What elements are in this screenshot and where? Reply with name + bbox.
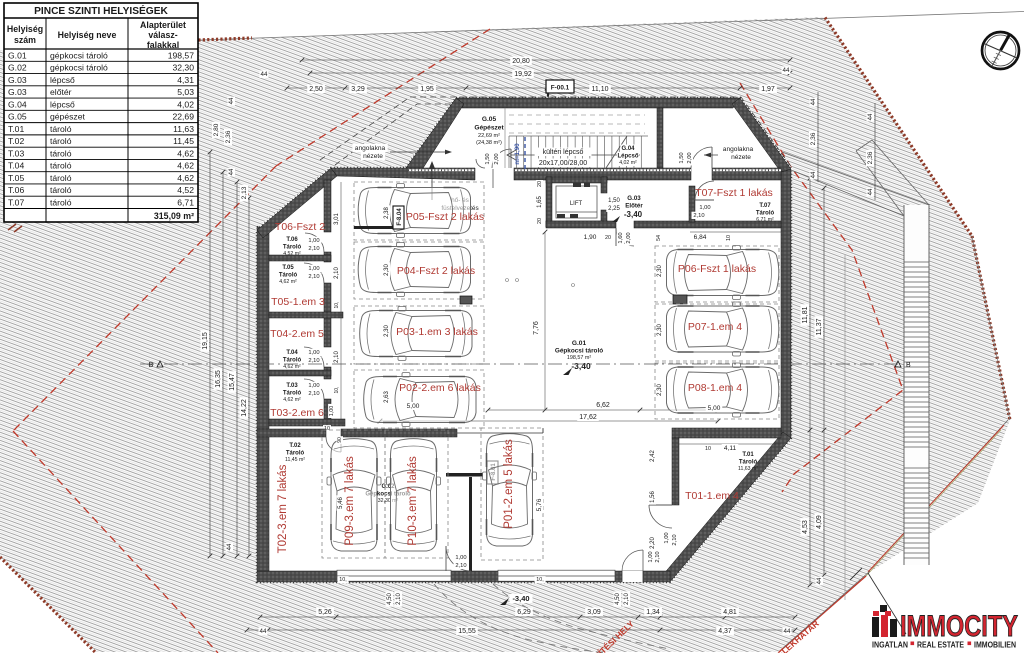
- svg-text:P05-Fszt 2 lakás: P05-Fszt 2 lakás: [406, 211, 484, 223]
- svg-text:1,00: 1,00: [308, 383, 319, 389]
- svg-text:11,63 m²: 11,63 m²: [738, 466, 758, 472]
- svg-text:G.03: G.03: [8, 75, 27, 85]
- svg-text:P10-3.em 7 lakás: P10-3.em 7 lakás: [407, 456, 419, 546]
- svg-text:6,84: 6,84: [694, 234, 707, 241]
- svg-text:44: 44: [227, 543, 233, 550]
- svg-text:2,10: 2,10: [308, 391, 319, 397]
- svg-text:54: 54: [656, 235, 662, 241]
- svg-text:F-8.04: F-8.04: [397, 208, 403, 226]
- svg-text:2,10: 2,10: [334, 267, 340, 279]
- svg-text:2,00: 2,00: [494, 153, 500, 164]
- svg-text:7,76: 7,76: [533, 321, 540, 335]
- svg-text:1,50: 1,50: [485, 153, 491, 164]
- svg-text:5,46: 5,46: [338, 497, 344, 509]
- svg-text:Gépkocsi tároló: Gépkocsi tároló: [555, 348, 603, 355]
- svg-text:T03-2.em 6: T03-2.em 6: [270, 407, 324, 419]
- svg-text:4,50: 4,50: [387, 593, 393, 605]
- svg-text:angolakna: angolakna: [723, 146, 754, 153]
- svg-text:G.01: G.01: [8, 50, 27, 60]
- svg-text:44: 44: [260, 628, 267, 635]
- svg-text:1,97: 1,97: [761, 86, 775, 93]
- svg-text:Gépészet: Gépészet: [474, 125, 504, 132]
- svg-text:1,50: 1,50: [679, 152, 685, 163]
- svg-text:tároló: tároló: [50, 161, 72, 171]
- svg-text:4,53: 4,53: [802, 520, 809, 534]
- svg-text:Lépcső: Lépcső: [617, 154, 638, 160]
- svg-text:4,37: 4,37: [718, 628, 732, 635]
- svg-text:22,69: 22,69: [172, 112, 194, 122]
- svg-text:6,71: 6,71: [177, 198, 194, 208]
- svg-text:44: 44: [229, 97, 235, 104]
- svg-text:2,80: 2,80: [213, 123, 220, 136]
- svg-text:3,29: 3,29: [351, 86, 365, 93]
- svg-text:44: 44: [229, 168, 235, 175]
- svg-text:B: B: [906, 362, 911, 369]
- svg-text:4,09: 4,09: [816, 515, 823, 529]
- svg-text:2,36: 2,36: [867, 151, 874, 164]
- svg-text:T.05: T.05: [282, 265, 294, 271]
- svg-text:T.07: T.07: [759, 203, 771, 209]
- svg-text:tároló: tároló: [50, 198, 72, 208]
- svg-text:REAL ESTATE: REAL ESTATE: [917, 641, 964, 650]
- svg-text:INGATLAN: INGATLAN: [872, 641, 908, 650]
- svg-text:IMMOCITY: IMMOCITY: [900, 610, 1018, 643]
- svg-text:1,50: 1,50: [608, 198, 620, 204]
- svg-text:T.06: T.06: [8, 185, 24, 195]
- svg-text:angolakna: angolakna: [355, 145, 386, 152]
- svg-text:Helyiség: Helyiség: [7, 24, 43, 34]
- svg-text:-3,40: -3,40: [571, 361, 591, 371]
- svg-text:2,10: 2,10: [455, 563, 466, 569]
- svg-text:10: 10: [726, 235, 732, 241]
- svg-text:1,00: 1,00: [455, 555, 466, 561]
- svg-text:2,30: 2,30: [384, 264, 390, 276]
- svg-text:2,25: 2,25: [608, 206, 620, 212]
- svg-text:válasz-: válasz-: [148, 30, 177, 40]
- svg-text:2,10: 2,10: [334, 351, 340, 363]
- svg-text:1,60: 1,60: [618, 232, 624, 243]
- svg-text:T07-Fszt 1 lakás: T07-Fszt 1 lakás: [695, 187, 773, 199]
- svg-text:5,76: 5,76: [536, 498, 543, 511]
- svg-text:11,81: 11,81: [802, 306, 809, 323]
- svg-text:2,42: 2,42: [650, 450, 656, 462]
- svg-text:2,10: 2,10: [693, 213, 704, 219]
- svg-text:10,: 10,: [339, 577, 347, 583]
- svg-text:Tároló: Tároló: [286, 451, 305, 457]
- svg-text:44: 44: [868, 188, 874, 195]
- svg-text:tároló: tároló: [50, 185, 72, 195]
- svg-text:tároló: tároló: [50, 136, 72, 146]
- svg-text:előtér: előtér: [50, 87, 72, 97]
- svg-text:P02-2.em 6 lakás: P02-2.em 6 lakás: [399, 382, 481, 394]
- svg-text:Alapterület: Alapterület: [140, 20, 186, 30]
- svg-text:15,55: 15,55: [458, 628, 476, 635]
- svg-text:2,10: 2,10: [308, 246, 319, 252]
- svg-text:2,38: 2,38: [384, 207, 390, 219]
- svg-text:44: 44: [811, 171, 817, 178]
- svg-text:Tároló: Tároló: [283, 358, 302, 364]
- svg-text:2,00: 2,00: [626, 232, 632, 243]
- svg-text:Tároló: Tároló: [283, 245, 302, 251]
- svg-text:1,00: 1,00: [308, 238, 319, 244]
- svg-text:4,11: 4,11: [724, 445, 737, 452]
- svg-text:2,30: 2,30: [657, 324, 663, 336]
- svg-text:2,10: 2,10: [396, 593, 402, 605]
- svg-text:F-00.1: F-00.1: [551, 85, 570, 92]
- svg-text:T.02: T.02: [8, 136, 24, 146]
- svg-text:m=1,90: m=1,90: [514, 143, 521, 165]
- svg-text:T04-2.em 5: T04-2.em 5: [270, 328, 324, 340]
- svg-text:44: 44: [817, 577, 823, 584]
- svg-text:T02-3.em 7 lakás: T02-3.em 7 lakás: [277, 464, 289, 553]
- svg-text:6,29: 6,29: [517, 609, 531, 616]
- svg-text:1,00: 1,00: [664, 532, 670, 543]
- svg-text:4,62: 4,62: [177, 148, 194, 158]
- svg-text:19,15: 19,15: [202, 332, 209, 350]
- svg-text:Helyiség neve: Helyiség neve: [58, 30, 117, 40]
- svg-text:20,80: 20,80: [512, 58, 530, 65]
- svg-text:T.02: T.02: [289, 443, 301, 449]
- svg-text:20: 20: [605, 235, 611, 241]
- svg-text:G.03: G.03: [8, 87, 27, 97]
- svg-text:20: 20: [537, 181, 543, 187]
- svg-text:11,63: 11,63: [173, 124, 194, 134]
- svg-text:1,65: 1,65: [537, 196, 543, 208]
- svg-text:5,00: 5,00: [407, 403, 420, 410]
- svg-text:1,90: 1,90: [584, 234, 597, 241]
- svg-text:10,: 10,: [334, 387, 340, 394]
- svg-text:2,36: 2,36: [225, 130, 232, 143]
- svg-text:16,35: 16,35: [215, 370, 222, 388]
- svg-text:P04-Fszt 2 lakás: P04-Fszt 2 lakás: [397, 265, 475, 277]
- svg-text:T05-1.em 3: T05-1.em 3: [271, 296, 325, 308]
- svg-text:2,30: 2,30: [384, 325, 390, 337]
- svg-text:IMMOBILIEN: IMMOBILIEN: [974, 641, 1016, 650]
- svg-text:Tároló: Tároló: [279, 273, 298, 279]
- svg-text:T.03: T.03: [8, 148, 24, 158]
- svg-text:falakkal: falakkal: [147, 40, 179, 50]
- svg-text:11,45 m²: 11,45 m²: [285, 457, 305, 463]
- svg-text:4,62: 4,62: [177, 161, 194, 171]
- svg-text:4,81: 4,81: [723, 609, 737, 616]
- svg-text:14,22: 14,22: [241, 399, 248, 417]
- svg-text:44: 44: [261, 71, 268, 78]
- svg-text:15,47: 15,47: [229, 373, 236, 391]
- svg-text:T.03: T.03: [286, 383, 298, 389]
- svg-text:6,71 m²: 6,71 m²: [756, 217, 774, 223]
- svg-text:gépészet: gépészet: [50, 112, 85, 122]
- svg-text:T.07: T.07: [8, 198, 24, 208]
- svg-text:nézete: nézete: [731, 154, 751, 161]
- svg-text:2,20: 2,20: [650, 537, 656, 549]
- svg-text:2,50: 2,50: [309, 86, 323, 93]
- svg-text:gépkocsi tároló: gépkocsi tároló: [50, 63, 108, 73]
- svg-text:44: 44: [868, 113, 874, 120]
- svg-text:T.01: T.01: [742, 452, 754, 458]
- svg-text:P09-3.em 7 lakás: P09-3.em 7 lakás: [344, 456, 356, 546]
- svg-text:11,10: 11,10: [592, 86, 609, 93]
- svg-text:LIFT: LIFT: [570, 201, 583, 207]
- svg-text:Tároló: Tároló: [739, 460, 758, 466]
- svg-text:T.04: T.04: [286, 350, 298, 356]
- svg-text:kültéri lépcső: kültéri lépcső: [543, 149, 584, 156]
- svg-text:-3,40: -3,40: [624, 210, 643, 219]
- svg-text:G.02: G.02: [8, 63, 27, 73]
- svg-text:(24,38 m²): (24,38 m²): [476, 140, 502, 146]
- svg-text:4,52: 4,52: [177, 185, 194, 195]
- svg-text:2,10: 2,10: [308, 274, 319, 280]
- svg-text:10: 10: [705, 446, 711, 452]
- svg-text:Előtér: Előtér: [625, 203, 643, 210]
- svg-text:20: 20: [537, 218, 543, 224]
- svg-text:tároló: tároló: [50, 148, 72, 158]
- svg-text:2,10: 2,10: [655, 551, 661, 562]
- svg-text:-3,40: -3,40: [512, 594, 529, 603]
- svg-text:10,: 10,: [334, 302, 340, 309]
- svg-text:T.05: T.05: [8, 173, 24, 183]
- svg-text:2,00: 2,00: [687, 152, 693, 163]
- svg-text:1,34: 1,34: [646, 609, 660, 616]
- svg-text:P03-1.em 3 lakás: P03-1.em 3 lakás: [396, 326, 478, 338]
- svg-text:1,00: 1,00: [648, 551, 654, 562]
- svg-text:tároló: tároló: [50, 124, 72, 134]
- svg-text:20x17,00/28,00: 20x17,00/28,00: [539, 160, 587, 167]
- svg-text:90: 90: [337, 437, 343, 443]
- svg-text:17,62: 17,62: [579, 414, 597, 421]
- svg-text:1,56: 1,56: [650, 491, 656, 503]
- svg-text:G.05: G.05: [482, 116, 497, 123]
- svg-text:2,13: 2,13: [241, 186, 248, 199]
- svg-text:1,00: 1,00: [308, 350, 319, 356]
- svg-text:G.03: G.03: [627, 195, 641, 202]
- svg-text:lépcső: lépcső: [50, 99, 75, 109]
- svg-text:4,52 m²: 4,52 m²: [283, 251, 301, 257]
- svg-text:32,30: 32,30: [172, 63, 194, 73]
- svg-text:2,30: 2,30: [657, 384, 663, 396]
- svg-text:Tároló: Tároló: [283, 391, 302, 397]
- svg-text:Tároló: Tároló: [756, 211, 775, 217]
- svg-text:2,10: 2,10: [672, 534, 678, 545]
- svg-text:4,62 m²: 4,62 m²: [283, 364, 301, 370]
- svg-text:4,62 m²: 4,62 m²: [283, 397, 301, 403]
- svg-text:T06-Fszt 2: T06-Fszt 2: [275, 221, 325, 233]
- svg-text:3,01: 3,01: [334, 213, 340, 225]
- svg-text:G.04: G.04: [8, 99, 27, 109]
- svg-text:2,30: 2,30: [657, 265, 663, 277]
- svg-text:2,63: 2,63: [384, 391, 390, 403]
- svg-text:1,00: 1,00: [308, 266, 319, 272]
- svg-text:4,50: 4,50: [615, 593, 621, 605]
- svg-text:4,31: 4,31: [177, 75, 194, 85]
- svg-text:tároló: tároló: [50, 173, 72, 183]
- svg-text:19,92: 19,92: [514, 71, 532, 78]
- svg-text:T01-1.em 4: T01-1.em 4: [685, 490, 739, 502]
- svg-text:T.01: T.01: [8, 124, 24, 134]
- svg-text:lépcső: lépcső: [50, 75, 75, 85]
- svg-text:P07-1.em 4: P07-1.em 4: [688, 321, 742, 333]
- svg-text:44: 44: [783, 67, 790, 74]
- svg-text:6,62: 6,62: [596, 402, 610, 409]
- svg-text:22,69 m²: 22,69 m²: [478, 133, 500, 139]
- svg-text:5,00: 5,00: [708, 405, 721, 412]
- svg-text:G.05: G.05: [8, 112, 27, 122]
- svg-text:4,62: 4,62: [177, 173, 194, 183]
- svg-text:PINCE SZINTI HELYISÉGEK: PINCE SZINTI HELYISÉGEK: [34, 4, 168, 17]
- svg-text:5,26: 5,26: [318, 609, 332, 616]
- svg-text:2,10: 2,10: [308, 358, 319, 364]
- svg-text:1,00: 1,00: [699, 205, 710, 211]
- svg-text:P06-Fszt 1 lakás: P06-Fszt 1 lakás: [678, 263, 756, 275]
- svg-text:44: 44: [784, 628, 791, 635]
- svg-text:198,57: 198,57: [168, 50, 195, 60]
- svg-text:nézete: nézete: [363, 153, 383, 160]
- svg-text:P08-1.em 4: P08-1.em 4: [688, 382, 742, 394]
- svg-text:T.04: T.04: [8, 161, 24, 171]
- svg-text:4,02: 4,02: [177, 99, 194, 109]
- svg-text:gépkocsi tároló: gépkocsi tároló: [50, 50, 108, 60]
- svg-text:11,37: 11,37: [816, 318, 823, 335]
- svg-text:315,09 m²: 315,09 m²: [154, 211, 194, 221]
- svg-text:1,00: 1,00: [329, 406, 335, 417]
- svg-text:2,36: 2,36: [810, 132, 817, 145]
- svg-text:T.06: T.06: [286, 237, 298, 243]
- svg-text:4,62 m²: 4,62 m²: [279, 279, 297, 285]
- svg-text:1,95: 1,95: [420, 86, 434, 93]
- svg-text:3,09: 3,09: [587, 609, 601, 616]
- svg-text:G.04: G.04: [621, 146, 635, 152]
- svg-text:44: 44: [811, 98, 817, 105]
- svg-text:B: B: [149, 362, 154, 369]
- svg-text:10,: 10,: [536, 577, 544, 583]
- svg-text:P01-2.em 5 lakás: P01-2.em 5 lakás: [503, 439, 515, 529]
- svg-text:11,45: 11,45: [173, 136, 194, 146]
- svg-text:szám: szám: [14, 35, 36, 45]
- svg-text:2,10: 2,10: [624, 593, 630, 605]
- svg-text:5,03: 5,03: [177, 87, 194, 97]
- svg-text:4,02 m²: 4,02 m²: [619, 160, 637, 166]
- svg-text:G.01: G.01: [572, 340, 587, 347]
